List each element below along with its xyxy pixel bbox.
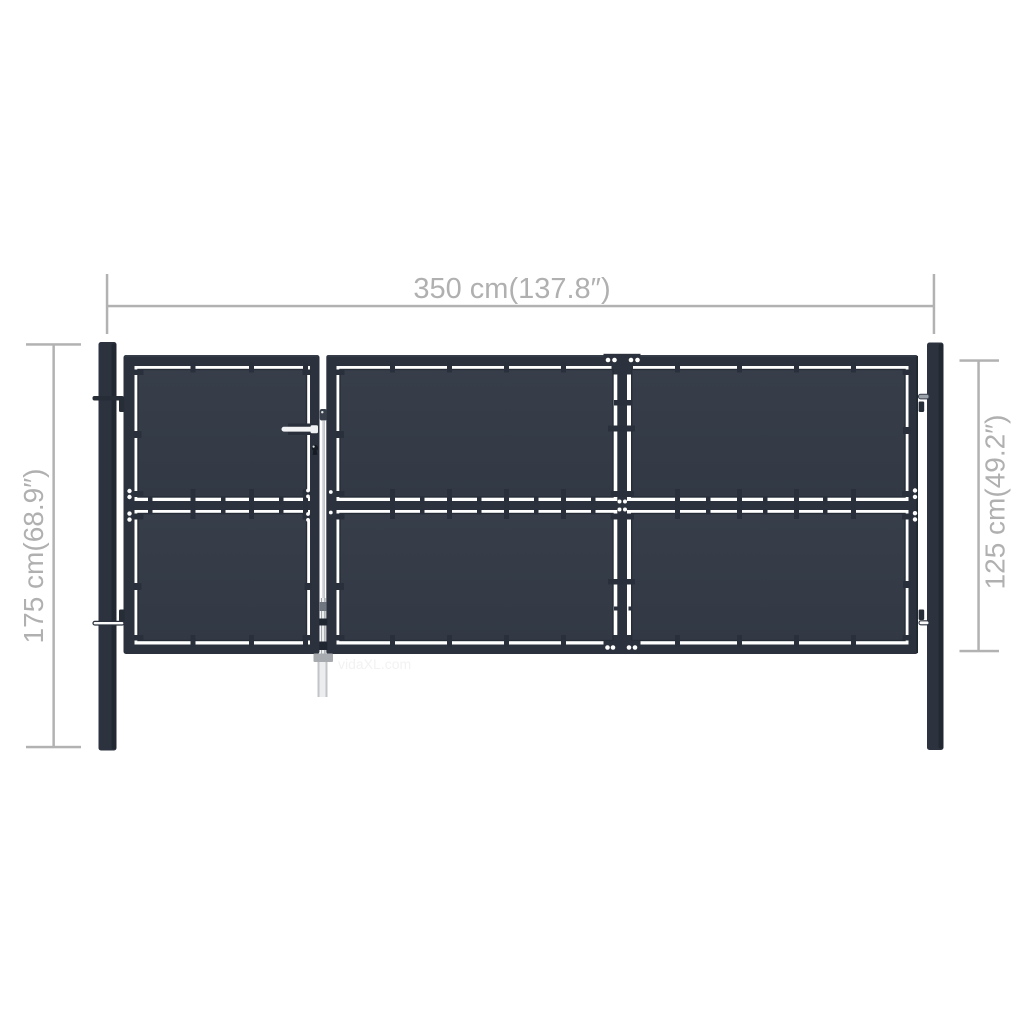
- svg-text:175 cm(68.9″): 175 cm(68.9″): [18, 469, 49, 644]
- svg-text:vidaXL.com: vidaXL.com: [338, 656, 411, 672]
- svg-text:125 cm(49.2″): 125 cm(49.2″): [980, 415, 1011, 590]
- svg-text:350 cm(137.8″): 350 cm(137.8″): [413, 273, 610, 305]
